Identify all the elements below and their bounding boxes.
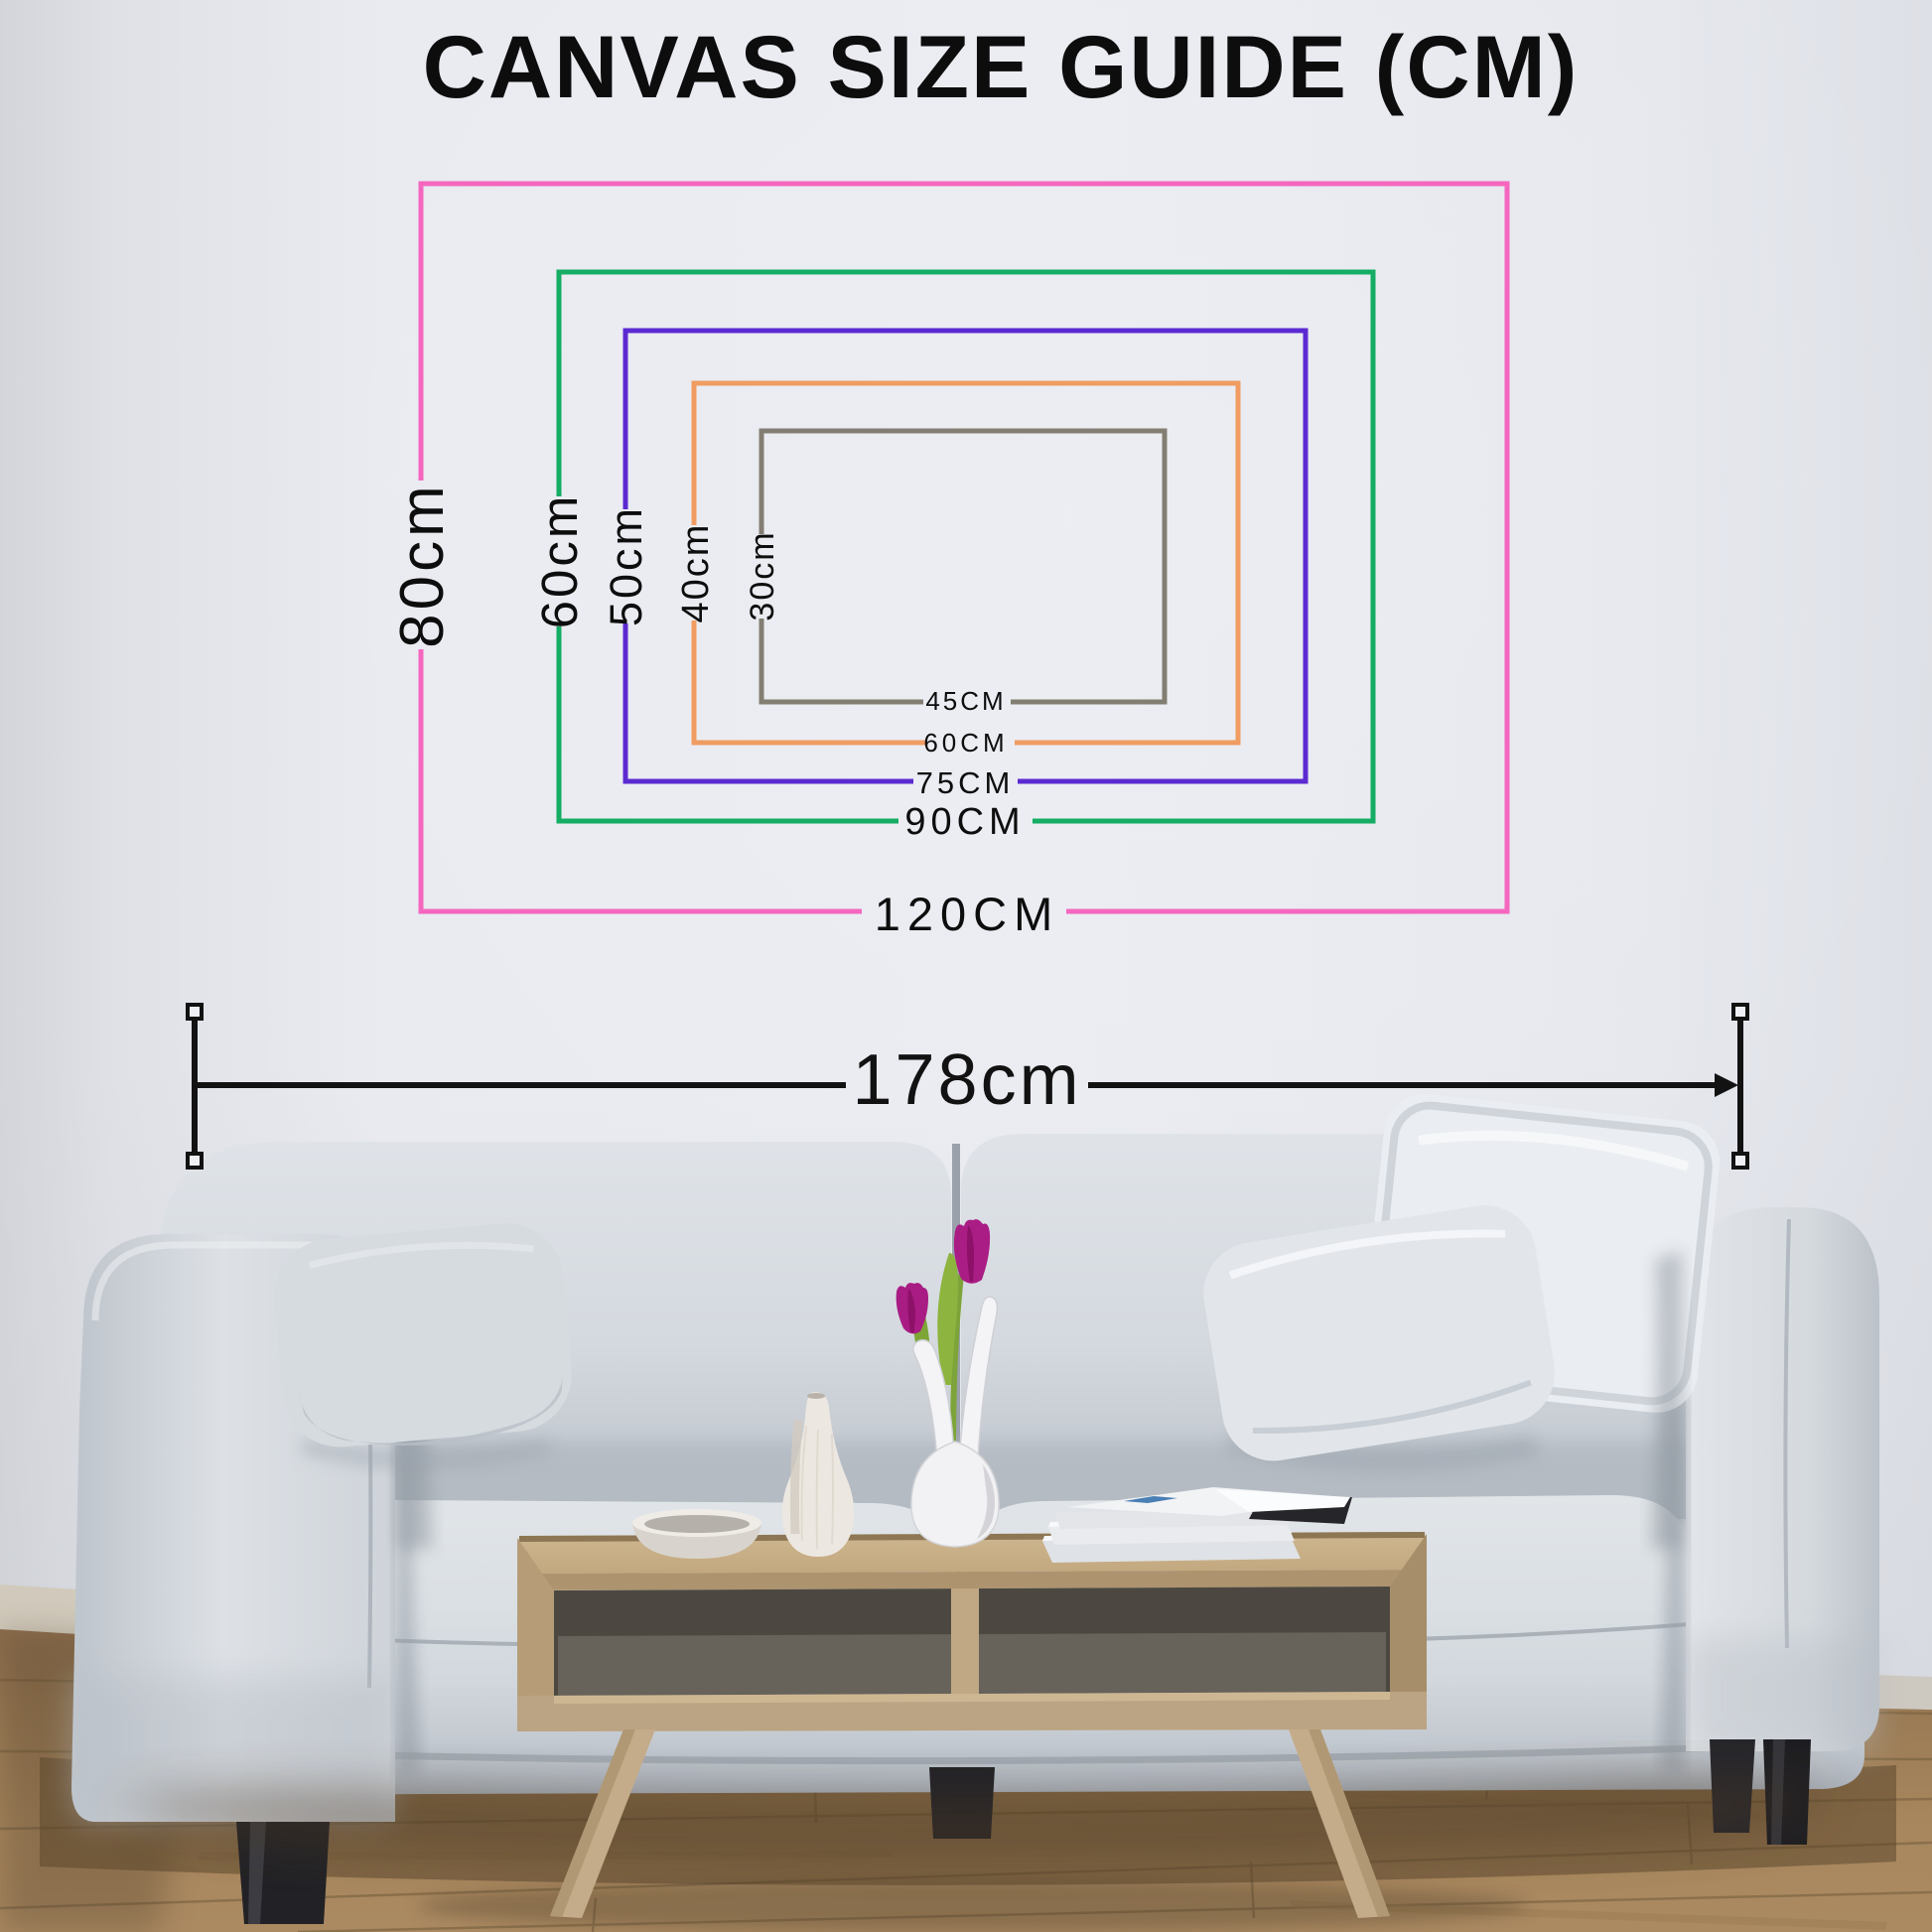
svg-text:40cm: 40cm: [675, 523, 717, 623]
svg-text:50cm: 50cm: [601, 505, 651, 626]
svg-text:90CM: 90CM: [904, 801, 1025, 843]
svg-text:30cm: 30cm: [744, 530, 781, 621]
svg-text:45CM: 45CM: [925, 686, 1006, 716]
svg-text:178cm: 178cm: [852, 1040, 1081, 1120]
svg-text:CANVAS SIZE GUIDE (CM): CANVAS SIZE GUIDE (CM): [423, 17, 1580, 116]
svg-text:120CM: 120CM: [875, 888, 1060, 940]
svg-text:60cm: 60cm: [531, 493, 588, 629]
svg-text:75CM: 75CM: [916, 765, 1015, 800]
svg-text:60CM: 60CM: [923, 728, 1008, 758]
svg-text:80cm: 80cm: [388, 482, 457, 648]
